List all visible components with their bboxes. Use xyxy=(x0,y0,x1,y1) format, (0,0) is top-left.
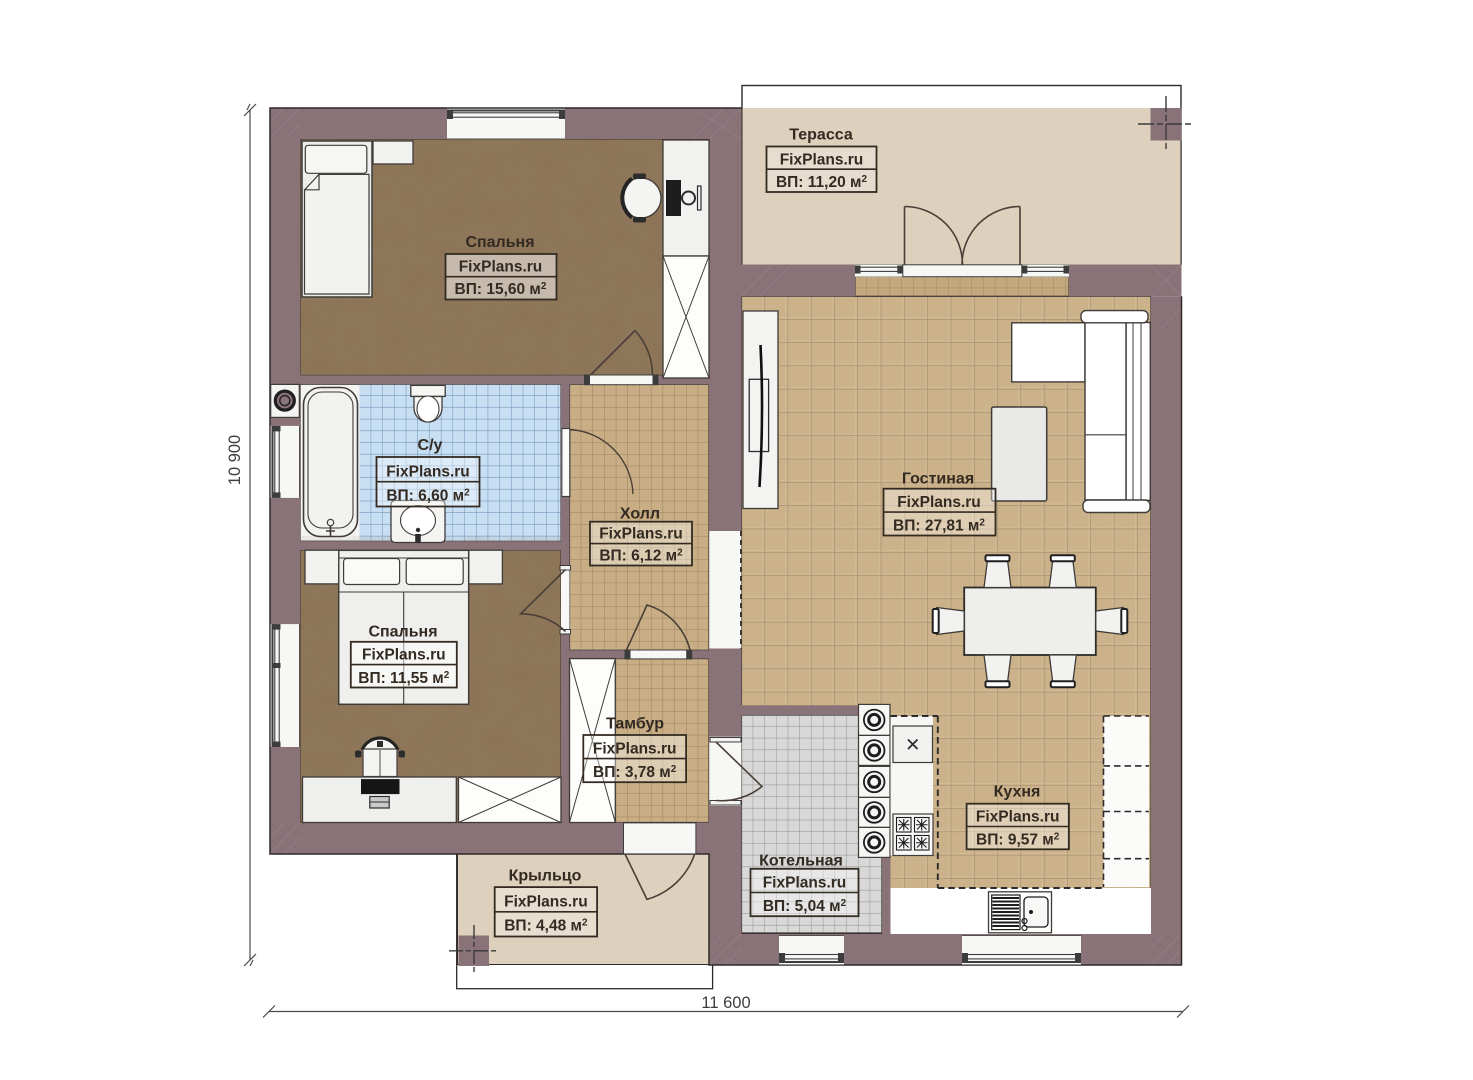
svg-text:FixPlans.ru: FixPlans.ru xyxy=(780,152,864,169)
svg-text:Крыльцо: Крыльцо xyxy=(509,868,582,885)
svg-text:Терасса: Терасса xyxy=(789,127,853,144)
svg-text:ВП: 5,04 м2: ВП: 5,04 м2 xyxy=(763,898,847,915)
svg-text:Тамбур: Тамбур xyxy=(606,716,664,733)
svg-text:ВП: 9,57 м2: ВП: 9,57 м2 xyxy=(976,832,1060,849)
svg-text:Спальня: Спальня xyxy=(368,624,437,641)
svg-text:Котельная: Котельная xyxy=(759,853,843,870)
svg-text:ВП: 15,60 м2: ВП: 15,60 м2 xyxy=(455,281,547,298)
svg-text:С/у: С/у xyxy=(418,437,443,454)
svg-text:ВП: 6,60 м2: ВП: 6,60 м2 xyxy=(386,488,470,505)
svg-text:Гостиная: Гостиная xyxy=(902,471,974,488)
svg-text:ВП: 3,78 м2: ВП: 3,78 м2 xyxy=(593,764,677,781)
svg-text:ВП: 27,81 м2: ВП: 27,81 м2 xyxy=(893,518,985,535)
svg-text:Кухня: Кухня xyxy=(994,784,1041,801)
svg-text:ВП: 11,20 м2: ВП: 11,20 м2 xyxy=(776,174,868,191)
svg-text:Спальня: Спальня xyxy=(465,234,534,251)
svg-text:FixPlans.ru: FixPlans.ru xyxy=(763,875,847,892)
svg-text:FixPlans.ru: FixPlans.ru xyxy=(599,526,683,543)
svg-text:ВП: 4,48 м2: ВП: 4,48 м2 xyxy=(504,918,588,935)
svg-text:FixPlans.ru: FixPlans.ru xyxy=(976,809,1060,826)
svg-text:FixPlans.ru: FixPlans.ru xyxy=(593,741,677,758)
svg-text:Холл: Холл xyxy=(620,506,660,523)
svg-text:ВП: 6,12 м2: ВП: 6,12 м2 xyxy=(599,548,683,565)
svg-text:11 600: 11 600 xyxy=(701,994,750,1012)
svg-text:FixPlans.ru: FixPlans.ru xyxy=(386,464,470,481)
svg-text:FixPlans.ru: FixPlans.ru xyxy=(504,894,588,911)
svg-text:FixPlans.ru: FixPlans.ru xyxy=(897,494,981,511)
svg-text:FixPlans.ru: FixPlans.ru xyxy=(362,647,446,664)
svg-text:ВП: 11,55 м2: ВП: 11,55 м2 xyxy=(358,670,450,687)
svg-text:10 900: 10 900 xyxy=(226,435,244,485)
svg-text:FixPlans.ru: FixPlans.ru xyxy=(459,259,543,276)
